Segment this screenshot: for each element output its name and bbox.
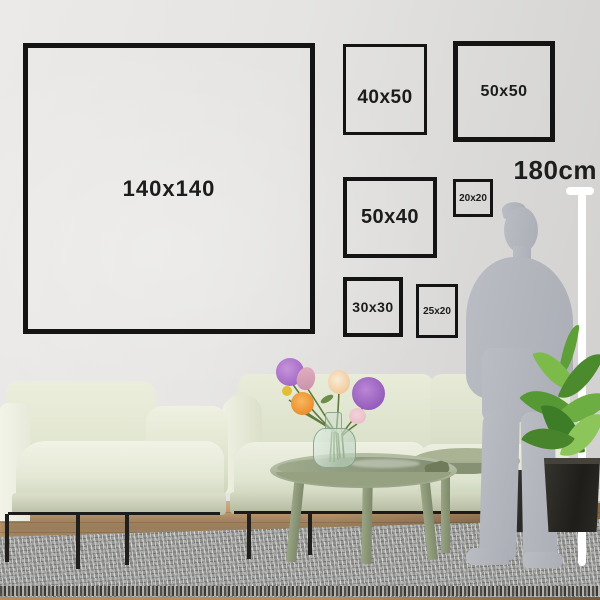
armchair-leg [76, 515, 80, 569]
armchair-leg [5, 514, 9, 562]
plant-pot-rim [544, 458, 600, 464]
armchair [0, 375, 232, 567]
potted-plant [520, 318, 600, 534]
frame-40x50: 40x50 [343, 44, 427, 135]
height-label: 180cm [514, 155, 597, 186]
wall-art-size-guide: 140x140 40x50 50x50 50x40 20x20 30x30 25… [0, 0, 600, 600]
frame-50x40: 50x40 [343, 177, 437, 258]
sofa-leg [247, 513, 251, 559]
table-leg [286, 482, 304, 563]
plant-pot [544, 458, 600, 532]
orange-ranunculus-flower [291, 392, 314, 415]
yellow-craspedia-flower [282, 386, 292, 396]
frame-size-label: 40x50 [357, 87, 412, 109]
armchair-leg [125, 515, 129, 565]
table-leg [420, 482, 438, 561]
glass-vase [313, 428, 356, 468]
purple-allium-flower [352, 377, 385, 410]
frame-140x140: 140x140 [23, 43, 315, 334]
silhouette-right-foot [523, 552, 563, 568]
frame-30x30: 30x30 [343, 277, 403, 337]
rug-fringe [0, 586, 600, 596]
armchair-frame-bar [8, 512, 220, 515]
flower-bouquet [262, 350, 402, 475]
frame-size-label: 50x40 [361, 206, 419, 229]
frame-size-label: 25x20 [423, 306, 451, 317]
silhouette-left-foot [466, 548, 509, 565]
pink-peony-bud [349, 408, 366, 424]
silhouette-left-leg [479, 410, 520, 561]
frame-size-label: 30x30 [352, 299, 393, 315]
frame-size-label: 140x140 [123, 176, 216, 202]
table-leg [361, 484, 372, 564]
frame-50x50: 50x50 [453, 41, 555, 142]
frame-size-label: 50x50 [481, 83, 528, 101]
